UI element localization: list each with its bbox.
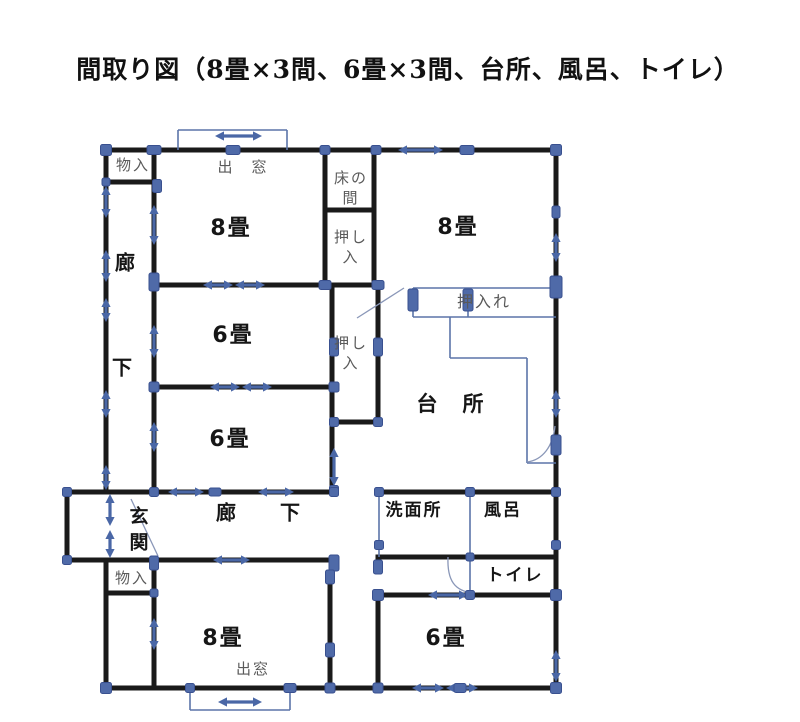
junction-marker	[551, 683, 562, 694]
junction-marker	[102, 178, 110, 186]
junction-marker	[101, 145, 112, 156]
junction-marker	[284, 684, 296, 693]
door-window-arrow-head	[101, 465, 110, 474]
junction-marker	[329, 382, 339, 392]
door-window-arrow-head	[195, 487, 204, 496]
door-window-arrow-head	[231, 382, 240, 391]
door-window-arrow-head	[253, 131, 262, 140]
junction-marker	[375, 488, 384, 497]
door-window-arrow-head	[263, 382, 272, 391]
junction-marker	[330, 418, 339, 427]
door-window-arrow-head	[149, 443, 158, 452]
junction-marker	[550, 276, 562, 298]
door-window-arrow-head	[203, 280, 212, 289]
junction-marker	[371, 146, 381, 155]
junction-marker	[149, 273, 159, 291]
door-window-arrow-head	[215, 131, 224, 140]
junction-marker	[330, 488, 339, 497]
label-oshiire-kitchen: 押入れ	[457, 291, 511, 313]
door-window-arrow-head	[101, 209, 110, 218]
junction-marker	[466, 591, 475, 600]
junction-marker	[186, 684, 195, 693]
junction-marker	[63, 488, 72, 497]
door-window-arrow-head	[235, 280, 244, 289]
door-window-arrow-head	[253, 697, 262, 706]
label-room-8jo-bottom: 8畳	[202, 624, 243, 654]
label-oshiire-1: 押し 入	[334, 227, 368, 268]
junction-marker	[552, 206, 560, 218]
junction-marker	[551, 435, 561, 455]
door-window-arrow-head	[435, 683, 444, 692]
junction-marker	[552, 541, 561, 550]
junction-marker	[466, 488, 475, 497]
label-senmenjo: 洗面所	[386, 500, 443, 523]
door-window-arrow-head	[258, 487, 267, 496]
door-window-arrow-head	[551, 390, 560, 399]
door-window-arrow-head	[101, 313, 110, 322]
door-window-arrow-head	[149, 641, 158, 650]
door-window-arrow-head	[101, 390, 110, 399]
door-window-arrow-head	[551, 650, 560, 659]
door-window-arrow-head	[398, 145, 407, 154]
door-window-arrow-head	[434, 145, 443, 154]
label-monoire-top: 物入	[116, 155, 150, 175]
door-window-arrow-head	[105, 494, 114, 503]
junction-marker	[373, 683, 383, 693]
door-window-arrow-head	[428, 590, 437, 599]
door-window-arrow-head	[469, 683, 478, 692]
junction-marker	[374, 338, 383, 356]
junction-marker	[101, 683, 112, 694]
door-window-arrow-head	[101, 481, 110, 490]
junction-marker	[375, 541, 384, 550]
junction-marker	[150, 556, 159, 570]
door-window-arrow-head	[149, 618, 158, 627]
door-window-arrow-head	[101, 273, 110, 282]
door-window-arrow-head	[105, 549, 114, 558]
door-window-arrow-head	[149, 236, 158, 245]
door-window-arrow-head	[168, 487, 177, 496]
door-window-arrow-head	[551, 673, 560, 682]
label-rouka-h-1: 廊	[216, 500, 238, 527]
junction-marker	[320, 146, 330, 155]
junction-marker	[325, 683, 335, 693]
junction-marker	[372, 281, 384, 290]
junction-marker	[373, 590, 384, 601]
door-window-arrow-head	[149, 205, 158, 214]
junction-marker	[374, 560, 383, 574]
junction-marker	[408, 289, 418, 311]
door-window-arrow-head	[551, 233, 560, 242]
label-demado-bottom: 出窓	[236, 659, 270, 679]
junction-marker	[226, 146, 240, 155]
junction-marker	[454, 684, 466, 693]
label-rouka-h-2: 下	[280, 500, 302, 527]
junction-marker	[149, 382, 159, 392]
junction-marker	[150, 589, 158, 597]
label-genkan: 玄 関	[129, 504, 150, 555]
junction-marker	[153, 180, 162, 193]
label-monoire-bottom: 物入	[115, 568, 149, 588]
label-toire: トイレ	[487, 565, 544, 588]
door-window-arrow-head	[551, 253, 560, 262]
door-window-arrow-head	[149, 325, 158, 334]
door-window-arrow-head	[412, 683, 421, 692]
junction-marker	[147, 146, 161, 155]
door-window-arrow-head	[149, 349, 158, 358]
door-window-arrow-head	[551, 409, 560, 418]
label-furo: 風呂	[484, 500, 522, 523]
junction-marker	[466, 553, 474, 561]
label-room-8jo-top-right: 8畳	[437, 213, 478, 243]
door-window-arrow-head	[101, 186, 110, 195]
junction-marker	[209, 488, 221, 496]
door-window-arrow-head	[210, 382, 219, 391]
door-window-arrow-head	[256, 280, 265, 289]
label-room-6jo-lower: 6畳	[209, 425, 250, 455]
label-daidokoro: 台 所	[417, 390, 486, 418]
door-window-arrow-head	[218, 697, 227, 706]
junction-marker	[326, 643, 335, 657]
junction-marker	[551, 590, 562, 601]
door-window-arrow-head	[149, 422, 158, 431]
label-oshiire-2: 押し 入	[334, 333, 368, 374]
label-rouka-v-2: 下	[112, 355, 134, 382]
label-rouka-v-1: 廊	[115, 250, 137, 277]
door-window-arrow-head	[241, 555, 250, 564]
door-window-arrow-head	[105, 517, 114, 526]
label-tokonoma: 床の 間	[334, 168, 368, 209]
door-window-arrow-head	[285, 487, 294, 496]
door-window-arrow-head	[101, 409, 110, 418]
junction-marker	[551, 145, 562, 156]
label-room-6jo-mid: 6畳	[212, 321, 253, 351]
door-window-arrow-head	[101, 250, 110, 259]
junction-marker	[326, 570, 335, 584]
junction-marker	[329, 555, 339, 571]
door-window-arrow-head	[224, 280, 233, 289]
floorplan-page: 間取り図（8畳×3間、6畳×3間、台所、風呂、トイレ） 物入出 窓床の 間押し …	[0, 0, 800, 722]
label-room-8jo-top-left: 8畳	[210, 214, 251, 244]
junction-marker	[63, 556, 72, 565]
door-window-arrow-head	[213, 555, 222, 564]
junction-marker	[374, 418, 383, 427]
junction-marker	[150, 488, 159, 497]
label-demado-top: 出 窓	[217, 157, 268, 177]
door-window-arrow-head	[242, 382, 251, 391]
junction-marker	[460, 146, 474, 155]
door-window-arrow-head	[105, 530, 114, 539]
junction-marker	[552, 488, 561, 497]
door-window-arrow-head	[101, 298, 110, 307]
label-room-6jo-bottom: 6畳	[425, 624, 466, 654]
junction-marker	[319, 281, 331, 290]
